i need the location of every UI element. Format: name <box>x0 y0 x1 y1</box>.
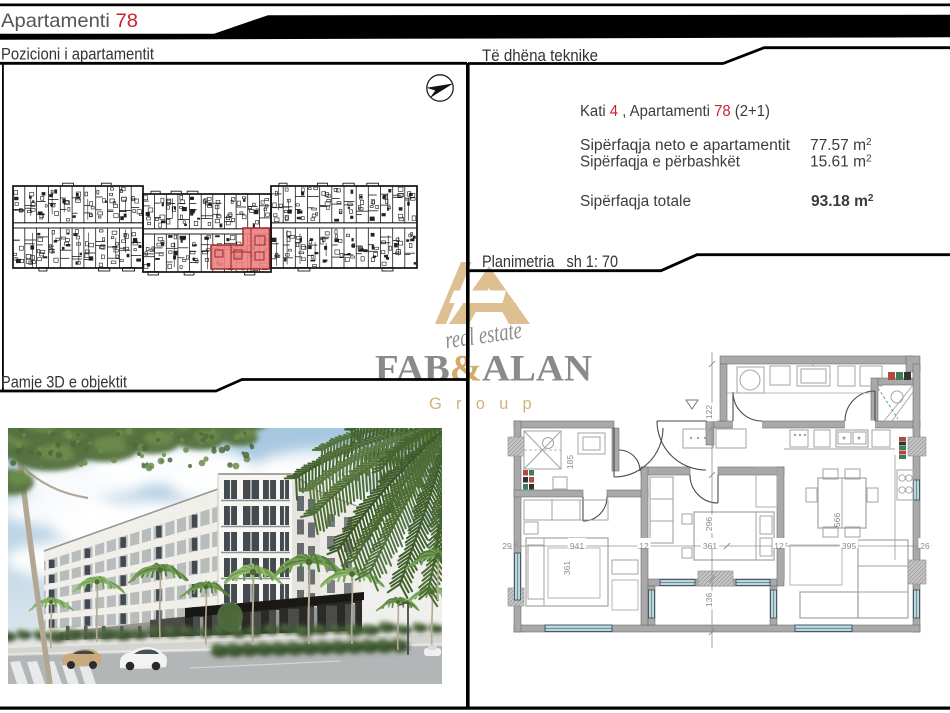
svg-text:12: 12 <box>774 541 784 551</box>
svg-text:361: 361 <box>562 561 572 575</box>
svg-text:77.57 m2: 77.57 m2 <box>810 137 872 154</box>
svg-text:FAB&ALAN: FAB&ALAN <box>375 348 592 389</box>
svg-text:296: 296 <box>704 517 714 531</box>
svg-text:566: 566 <box>832 513 842 527</box>
svg-text:12: 12 <box>639 541 649 551</box>
svg-text:941: 941 <box>570 541 584 551</box>
svg-text:Sipërfaqja neto e apartamentit: Sipërfaqja neto e apartamentit <box>580 137 791 154</box>
svg-text:122: 122 <box>704 405 714 419</box>
svg-text:185: 185 <box>565 455 575 469</box>
svg-text:Sipërfaqja e përbashkët: Sipërfaqja e përbashkët <box>580 154 741 171</box>
svg-text:93.18 m2: 93.18 m2 <box>811 193 874 210</box>
svg-text:395: 395 <box>842 541 856 551</box>
svg-text:15.61 m2: 15.61 m2 <box>810 154 872 171</box>
svg-text:Pozicioni i apartamentit: Pozicioni i apartamentit <box>1 45 154 64</box>
svg-text:Pamje 3D e objektit: Pamje 3D e objektit <box>1 373 127 392</box>
svg-text:29: 29 <box>502 541 512 551</box>
svg-text:26: 26 <box>920 541 930 551</box>
svg-text:361: 361 <box>703 541 717 551</box>
svg-text:Kati 4 , Apartamenti 78 (2+1): Kati 4 , Apartamenti 78 (2+1) <box>580 103 770 120</box>
svg-text:Sipërfaqja totale: Sipërfaqja totale <box>580 193 691 210</box>
svg-text:Planimetria sh 1: 70: Planimetria sh 1: 70 <box>482 252 618 271</box>
svg-text:Group: Group <box>429 395 546 413</box>
svg-text:136: 136 <box>704 593 714 607</box>
svg-text:Apartamenti 78: Apartamenti 78 <box>1 10 138 32</box>
